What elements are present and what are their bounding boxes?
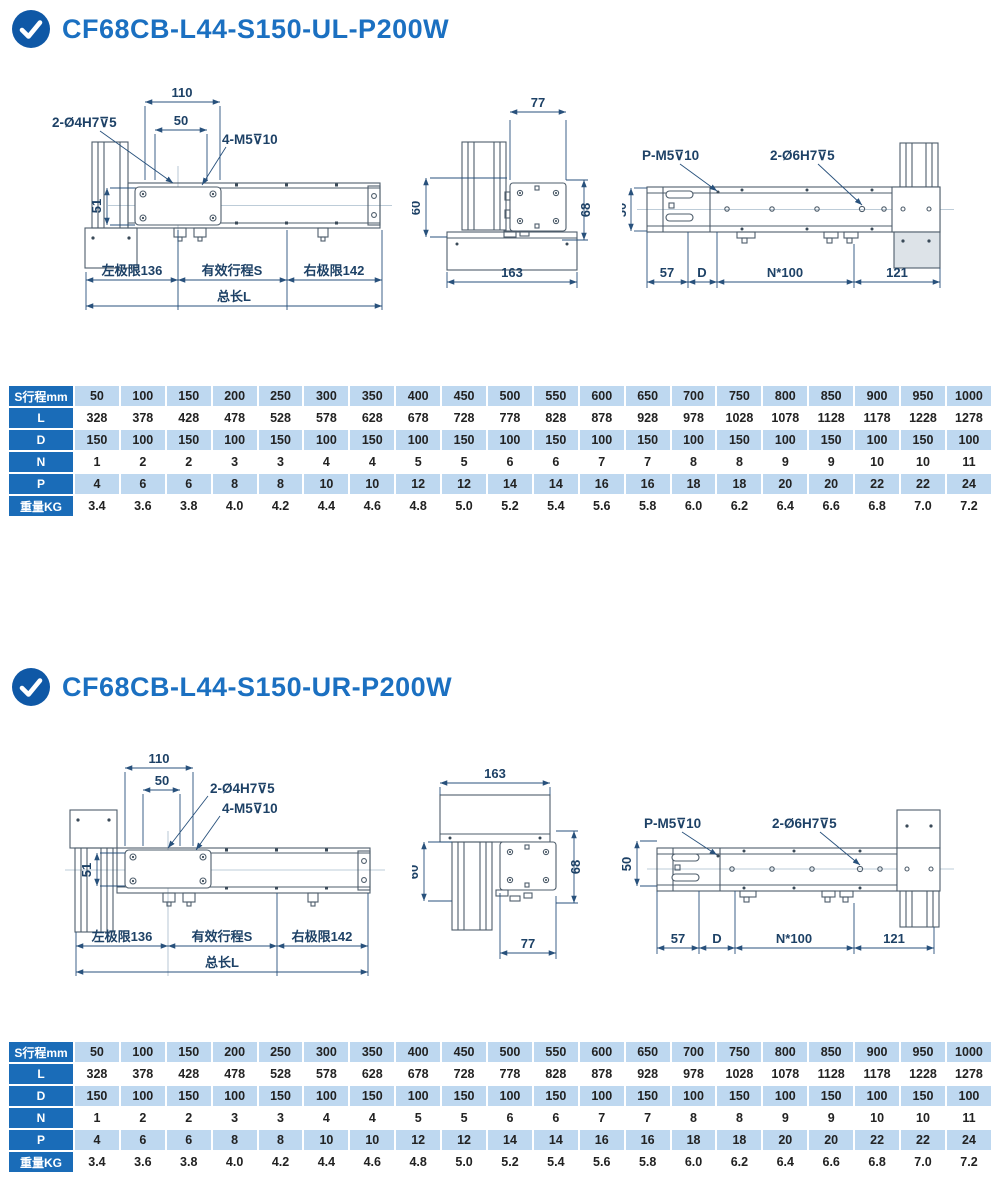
spec-cell: 978 xyxy=(672,408,716,428)
spec-cell: 1 xyxy=(75,452,119,472)
spec-cell: 100 xyxy=(855,1086,899,1106)
dim-stroke: 有效行程S xyxy=(202,263,263,278)
spec-cell: 6.6 xyxy=(809,496,853,516)
spec-cell: 100 xyxy=(488,1086,532,1106)
top-view-drawing-ur: P-M5⊽10 2-Ø6H7⊽5 50 57 D N*100 121 xyxy=(622,746,994,996)
dim-110: 110 xyxy=(149,751,170,766)
spec-cell: 16 xyxy=(580,1130,624,1150)
spec-cell: 3.6 xyxy=(121,496,165,516)
spec-cell: 150 xyxy=(717,1086,761,1106)
dim-50: 50 xyxy=(622,203,629,217)
spec-cell: 450 xyxy=(442,1042,486,1062)
check-icon xyxy=(12,668,50,706)
dim-left-limit: 左极限136 xyxy=(102,263,163,278)
spec-cell: 1078 xyxy=(763,408,807,428)
spec-cell: 100 xyxy=(580,430,624,450)
spec-cell: 6 xyxy=(488,1108,532,1128)
spec-cell: 7 xyxy=(626,452,670,472)
spec-cell: 300 xyxy=(304,1042,348,1062)
spec-cell: 22 xyxy=(901,1130,945,1150)
spec-cell: 3.8 xyxy=(167,496,211,516)
spec-cell: 1228 xyxy=(901,408,945,428)
spec-cell: 678 xyxy=(396,408,440,428)
spec-cell: 3.8 xyxy=(167,1152,211,1172)
spec-cell: 150 xyxy=(259,430,303,450)
spec-row: L328378428478528578628678728778828878928… xyxy=(9,1064,991,1084)
spec-cell: 378 xyxy=(121,408,165,428)
spec-row: 重量KG3.43.63.84.04.24.44.64.85.05.25.45.6… xyxy=(9,496,991,516)
spec-cell: 7.0 xyxy=(901,496,945,516)
spec-cell: 100 xyxy=(121,1086,165,1106)
dim-stroke: 有效行程S xyxy=(192,929,253,944)
spec-cell: 150 xyxy=(626,1086,670,1106)
dim-68: 68 xyxy=(578,203,593,217)
spec-cell: 150 xyxy=(901,430,945,450)
spec-cell: 600 xyxy=(580,386,624,406)
spec-cell: 6.8 xyxy=(855,496,899,516)
spec-cell: 100 xyxy=(396,430,440,450)
spec-cell: 4.8 xyxy=(396,1152,440,1172)
spec-cell: 4.6 xyxy=(350,1152,394,1172)
dim-right-limit: 右极限142 xyxy=(303,263,365,278)
spec-cell: 12 xyxy=(396,1130,440,1150)
dim-50: 50 xyxy=(155,773,169,788)
spec-cell: 800 xyxy=(763,386,807,406)
spec-cell: 12 xyxy=(442,1130,486,1150)
spec-cell: 100 xyxy=(396,1086,440,1106)
front-view-dimensions-ur: 110 50 2-Ø4H7⊽5 4-M5⊽10 51 左极限136 有效行程S … xyxy=(76,751,368,976)
spec-cell: 2 xyxy=(167,1108,211,1128)
spec-cell: 650 xyxy=(626,386,670,406)
spec-cell: 5 xyxy=(442,452,486,472)
spec-cell: 10 xyxy=(350,1130,394,1150)
dim-163: 163 xyxy=(501,265,523,280)
spec-cell: 950 xyxy=(901,1042,945,1062)
front-view-drawing-ul: 110 50 2-Ø4H7⊽5 4-M5⊽10 51 左极限136 有效行程S … xyxy=(50,80,405,330)
spec-cell: 10 xyxy=(901,1108,945,1128)
spec-cell: 18 xyxy=(717,1130,761,1150)
spec-cell: 6 xyxy=(167,474,211,494)
spec-cell: 2 xyxy=(167,452,211,472)
spec-cell: 478 xyxy=(213,1064,257,1084)
spec-cell: 100 xyxy=(121,430,165,450)
spec-cell: 50 xyxy=(75,386,119,406)
spec-row: N12233445566778899101011 xyxy=(9,452,991,472)
spec-cell: 4 xyxy=(75,474,119,494)
spec-cell: 1178 xyxy=(855,408,899,428)
spec-row-label: 重量KG xyxy=(9,1152,73,1172)
section-header-ur: CF68CB-L44-S150-UR-P200W xyxy=(12,668,452,706)
spec-cell: 878 xyxy=(580,1064,624,1084)
spec-cell: 6 xyxy=(534,1108,578,1128)
spec-cell: 850 xyxy=(809,1042,853,1062)
spec-row-label: S行程mm xyxy=(9,1042,73,1062)
spec-cell: 4.4 xyxy=(304,496,348,516)
spec-cell: 450 xyxy=(442,386,486,406)
spec-cell: 11 xyxy=(947,452,991,472)
spec-cell: 100 xyxy=(304,1086,348,1106)
spec-cell: 150 xyxy=(350,430,394,450)
spec-cell: 9 xyxy=(763,452,807,472)
spec-cell: 5.4 xyxy=(534,496,578,516)
spec-cell: 150 xyxy=(534,430,578,450)
spec-cell: 1078 xyxy=(763,1064,807,1084)
spec-cell: 250 xyxy=(259,1042,303,1062)
spec-row: D150100150100150100150100150100150100150… xyxy=(9,1086,991,1106)
spec-cell: 4 xyxy=(304,1108,348,1128)
side-view-parts-ur xyxy=(440,795,556,930)
spec-cell: 6 xyxy=(121,1130,165,1150)
spec-cell: 22 xyxy=(901,474,945,494)
spec-cell: 150 xyxy=(901,1086,945,1106)
spec-cell: 200 xyxy=(213,1042,257,1062)
spec-cell: 250 xyxy=(259,386,303,406)
spec-cell: 378 xyxy=(121,1064,165,1084)
label-dowel-holes: 2-Ø4H7⊽5 xyxy=(52,115,117,130)
spec-cell: 150 xyxy=(717,430,761,450)
spec-cell: 24 xyxy=(947,474,991,494)
spec-cell: 4 xyxy=(350,452,394,472)
spec-cell: 4.0 xyxy=(213,496,257,516)
spec-cell: 1128 xyxy=(809,1064,853,1084)
spec-row-label: S行程mm xyxy=(9,386,73,406)
check-icon xyxy=(12,10,50,48)
spec-cell: 3 xyxy=(213,452,257,472)
side-view-parts-ul xyxy=(447,142,577,270)
spec-cell: 878 xyxy=(580,408,624,428)
spec-row: L328378428478528578628678728778828878928… xyxy=(9,408,991,428)
spec-cell: 778 xyxy=(488,1064,532,1084)
label-p-m5: P-M5⊽10 xyxy=(642,148,699,163)
spec-cell: 9 xyxy=(809,1108,853,1128)
top-view-drawing-ul: P-M5⊽10 2-Ø6H7⊽5 50 57 D N*100 121 xyxy=(622,80,994,330)
spec-cell: 20 xyxy=(763,474,807,494)
spec-cell: 8 xyxy=(259,1130,303,1150)
spec-cell: 5.2 xyxy=(488,496,532,516)
spec-row-label: D xyxy=(9,1086,73,1106)
spec-row-label: P xyxy=(9,474,73,494)
spec-cell: 100 xyxy=(121,386,165,406)
dim-110: 110 xyxy=(172,85,193,100)
spec-cell: 150 xyxy=(259,1086,303,1106)
spec-cell: 3.6 xyxy=(121,1152,165,1172)
spec-cell: 300 xyxy=(304,386,348,406)
dim-d: D xyxy=(712,931,721,946)
spec-cell: 1278 xyxy=(947,408,991,428)
spec-row-label: L xyxy=(9,1064,73,1084)
spec-cell: 150 xyxy=(809,1086,853,1106)
spec-cell: 10 xyxy=(304,1130,348,1150)
spec-cell: 828 xyxy=(534,408,578,428)
spec-cell: 150 xyxy=(809,430,853,450)
spec-cell: 150 xyxy=(167,1086,211,1106)
spec-cell: 3 xyxy=(259,452,303,472)
spec-cell: 700 xyxy=(672,386,716,406)
dim-57: 57 xyxy=(671,931,685,946)
dim-50: 50 xyxy=(174,113,188,128)
spec-cell: 12 xyxy=(396,474,440,494)
spec-cell: 150 xyxy=(167,386,211,406)
spec-cell: 628 xyxy=(350,408,394,428)
spec-row: D150100150100150100150100150100150100150… xyxy=(9,430,991,450)
spec-cell: 10 xyxy=(304,474,348,494)
side-view-drawing-ul: 77 60 68 163 xyxy=(412,80,617,330)
spec-cell: 2 xyxy=(121,1108,165,1128)
spec-cell: 328 xyxy=(75,1064,119,1084)
front-view-parts-ur xyxy=(65,810,385,976)
spec-cell: 4.2 xyxy=(259,1152,303,1172)
spec-cell: 4.8 xyxy=(396,496,440,516)
spec-cell: 18 xyxy=(717,474,761,494)
spec-cell: 8 xyxy=(717,1108,761,1128)
spec-cell: 1000 xyxy=(947,386,991,406)
spec-cell: 728 xyxy=(442,408,486,428)
spec-cell: 16 xyxy=(580,474,624,494)
spec-cell: 650 xyxy=(626,1042,670,1062)
spec-row: S行程mm50100150200250300350400450500550600… xyxy=(9,386,991,406)
spec-cell: 750 xyxy=(717,1042,761,1062)
spec-cell: 5.8 xyxy=(626,1152,670,1172)
spec-cell: 978 xyxy=(672,1064,716,1084)
spec-cell: 150 xyxy=(350,1086,394,1106)
spec-cell: 150 xyxy=(534,1086,578,1106)
spec-cell: 8 xyxy=(213,474,257,494)
spec-row: S行程mm50100150200250300350400450500550600… xyxy=(9,1042,991,1062)
spec-cell: 828 xyxy=(534,1064,578,1084)
spec-cell: 578 xyxy=(304,408,348,428)
spec-cell: 150 xyxy=(167,430,211,450)
dim-n100: N*100 xyxy=(767,265,803,280)
spec-cell: 16 xyxy=(626,1130,670,1150)
spec-cell: 4.2 xyxy=(259,496,303,516)
spec-cell: 500 xyxy=(488,386,532,406)
spec-row-label: N xyxy=(9,452,73,472)
dim-left-limit: 左极限136 xyxy=(92,929,153,944)
spec-cell: 778 xyxy=(488,408,532,428)
spec-cell: 200 xyxy=(213,386,257,406)
spec-cell: 4 xyxy=(75,1130,119,1150)
spec-cell: 2 xyxy=(121,452,165,472)
spec-cell: 100 xyxy=(213,1086,257,1106)
spec-cell: 1 xyxy=(75,1108,119,1128)
spec-cell: 18 xyxy=(672,1130,716,1150)
datasheet-page: CF68CB-L44-S150-UL-P200W xyxy=(0,0,1000,1190)
spec-cell: 5.8 xyxy=(626,496,670,516)
spec-cell: 728 xyxy=(442,1064,486,1084)
dim-51: 51 xyxy=(79,863,94,877)
spec-cell: 5.6 xyxy=(580,1152,624,1172)
spec-cell: 5.0 xyxy=(442,1152,486,1172)
spec-cell: 5.2 xyxy=(488,1152,532,1172)
spec-cell: 7 xyxy=(626,1108,670,1128)
side-view-drawing-ur: 163 60 68 77 xyxy=(412,746,617,996)
label-p-m5: P-M5⊽10 xyxy=(644,816,701,831)
spec-cell: 478 xyxy=(213,408,257,428)
spec-cell: 6.4 xyxy=(763,496,807,516)
spec-cell: 7 xyxy=(580,1108,624,1128)
spec-cell: 11 xyxy=(947,1108,991,1128)
spec-cell: 8 xyxy=(717,452,761,472)
spec-cell: 7.2 xyxy=(947,1152,991,1172)
spec-cell: 150 xyxy=(626,430,670,450)
spec-cell: 428 xyxy=(167,408,211,428)
spec-cell: 8 xyxy=(672,452,716,472)
spec-row: N12233445566778899101011 xyxy=(9,1108,991,1128)
product-title-ul: CF68CB-L44-S150-UL-P200W xyxy=(62,14,449,45)
spec-cell: 400 xyxy=(396,1042,440,1062)
spec-cell: 700 xyxy=(672,1042,716,1062)
spec-cell: 100 xyxy=(763,1086,807,1106)
dim-50: 50 xyxy=(622,857,634,871)
label-screw-holes: 4-M5⊽10 xyxy=(222,801,278,816)
spec-cell: 1228 xyxy=(901,1064,945,1084)
spec-cell: 1028 xyxy=(717,408,761,428)
spec-cell: 9 xyxy=(763,1108,807,1128)
spec-cell: 5 xyxy=(442,1108,486,1128)
spec-cell: 6 xyxy=(121,474,165,494)
spec-cell: 20 xyxy=(809,1130,853,1150)
dim-60: 60 xyxy=(412,201,423,215)
spec-cell: 6 xyxy=(534,452,578,472)
spec-cell: 8 xyxy=(259,474,303,494)
spec-cell: 550 xyxy=(534,1042,578,1062)
spec-cell: 100 xyxy=(213,430,257,450)
dim-163: 163 xyxy=(484,766,506,781)
spec-cell: 24 xyxy=(947,1130,991,1150)
spec-cell: 150 xyxy=(75,430,119,450)
spec-cell: 6 xyxy=(488,452,532,472)
spec-cell: 100 xyxy=(672,430,716,450)
spec-row-label: D xyxy=(9,430,73,450)
spec-cell: 20 xyxy=(763,1130,807,1150)
spec-cell: 950 xyxy=(901,386,945,406)
spec-cell: 6.0 xyxy=(672,496,716,516)
spec-cell: 5.4 xyxy=(534,1152,578,1172)
spec-cell: 14 xyxy=(488,1130,532,1150)
spec-cell: 4 xyxy=(350,1108,394,1128)
dim-60: 60 xyxy=(412,865,421,879)
dim-total-length: 总长L xyxy=(217,289,251,304)
spec-cell: 100 xyxy=(672,1086,716,1106)
spec-cell: 20 xyxy=(809,474,853,494)
dim-68: 68 xyxy=(568,860,583,874)
label-6h7: 2-Ø6H7⊽5 xyxy=(770,148,835,163)
spec-cell: 14 xyxy=(488,474,532,494)
spec-row-label: L xyxy=(9,408,73,428)
spec-cell: 928 xyxy=(626,408,670,428)
spec-cell: 10 xyxy=(855,1108,899,1128)
spec-cell: 10 xyxy=(350,474,394,494)
spec-cell: 5 xyxy=(396,1108,440,1128)
spec-cell: 4.4 xyxy=(304,1152,348,1172)
spec-cell: 150 xyxy=(167,1042,211,1062)
label-dowel-holes: 2-Ø4H7⊽5 xyxy=(210,781,275,796)
spec-cell: 3 xyxy=(213,1108,257,1128)
spec-cell: 600 xyxy=(580,1042,624,1062)
spec-cell: 328 xyxy=(75,408,119,428)
spec-cell: 4.6 xyxy=(350,496,394,516)
spec-cell: 100 xyxy=(580,1086,624,1106)
spec-cell: 150 xyxy=(442,430,486,450)
spec-cell: 1178 xyxy=(855,1064,899,1084)
spec-cell: 6.6 xyxy=(809,1152,853,1172)
spec-cell: 400 xyxy=(396,386,440,406)
spec-row-label: 重量KG xyxy=(9,496,73,516)
spec-cell: 528 xyxy=(259,1064,303,1084)
spec-table-ur: S行程mm50100150200250300350400450500550600… xyxy=(7,1040,993,1174)
spec-row-label: P xyxy=(9,1130,73,1150)
spec-cell: 8 xyxy=(213,1130,257,1150)
dim-121: 121 xyxy=(886,265,908,280)
spec-cell: 18 xyxy=(672,474,716,494)
spec-cell: 900 xyxy=(855,386,899,406)
spec-cell: 150 xyxy=(442,1086,486,1106)
spec-cell: 4.0 xyxy=(213,1152,257,1172)
product-title-ur: CF68CB-L44-S150-UR-P200W xyxy=(62,672,452,703)
section-header-ul: CF68CB-L44-S150-UL-P200W xyxy=(12,10,449,48)
spec-cell: 10 xyxy=(901,452,945,472)
spec-cell: 8 xyxy=(672,1108,716,1128)
spec-cell: 350 xyxy=(350,1042,394,1062)
spec-cell: 5.0 xyxy=(442,496,486,516)
spec-cell: 100 xyxy=(121,1042,165,1062)
spec-cell: 12 xyxy=(442,474,486,494)
spec-cell: 1278 xyxy=(947,1064,991,1084)
spec-cell: 10 xyxy=(855,452,899,472)
spec-cell: 100 xyxy=(855,430,899,450)
spec-cell: 3.4 xyxy=(75,496,119,516)
spec-cell: 5.6 xyxy=(580,496,624,516)
spec-cell: 9 xyxy=(809,452,853,472)
spec-cell: 6.8 xyxy=(855,1152,899,1172)
label-6h7: 2-Ø6H7⊽5 xyxy=(772,816,837,831)
spec-cell: 4 xyxy=(304,452,348,472)
dim-d: D xyxy=(697,265,706,280)
spec-cell: 3.4 xyxy=(75,1152,119,1172)
spec-cell: 6.4 xyxy=(763,1152,807,1172)
spec-cell: 7 xyxy=(580,452,624,472)
dim-77: 77 xyxy=(521,936,535,951)
spec-cell: 100 xyxy=(763,430,807,450)
dim-57: 57 xyxy=(660,265,674,280)
spec-cell: 428 xyxy=(167,1064,211,1084)
dim-121: 121 xyxy=(883,931,905,946)
spec-cell: 550 xyxy=(534,386,578,406)
label-screw-holes: 4-M5⊽10 xyxy=(222,132,278,147)
spec-cell: 6.2 xyxy=(717,496,761,516)
spec-row: P46688101012121414161618182020222224 xyxy=(9,474,991,494)
spec-cell: 6.0 xyxy=(672,1152,716,1172)
spec-cell: 6.2 xyxy=(717,1152,761,1172)
spec-cell: 1028 xyxy=(717,1064,761,1084)
dim-77: 77 xyxy=(531,95,545,110)
spec-cell: 22 xyxy=(855,1130,899,1150)
spec-cell: 100 xyxy=(947,1086,991,1106)
spec-cell: 100 xyxy=(304,430,348,450)
dim-right-limit: 右极限142 xyxy=(291,929,353,944)
front-view-drawing-ur: 110 50 2-Ø4H7⊽5 4-M5⊽10 51 左极限136 有效行程S … xyxy=(50,746,405,996)
spec-cell: 1000 xyxy=(947,1042,991,1062)
spec-cell: 850 xyxy=(809,386,853,406)
spec-cell: 928 xyxy=(626,1064,670,1084)
dim-n100: N*100 xyxy=(776,931,812,946)
spec-cell: 578 xyxy=(304,1064,348,1084)
spec-cell: 100 xyxy=(488,430,532,450)
spec-table-ul: S行程mm50100150200250300350400450500550600… xyxy=(7,384,993,518)
spec-cell: 5 xyxy=(396,452,440,472)
dim-total-length: 总长L xyxy=(205,955,239,970)
dim-51: 51 xyxy=(89,199,104,213)
